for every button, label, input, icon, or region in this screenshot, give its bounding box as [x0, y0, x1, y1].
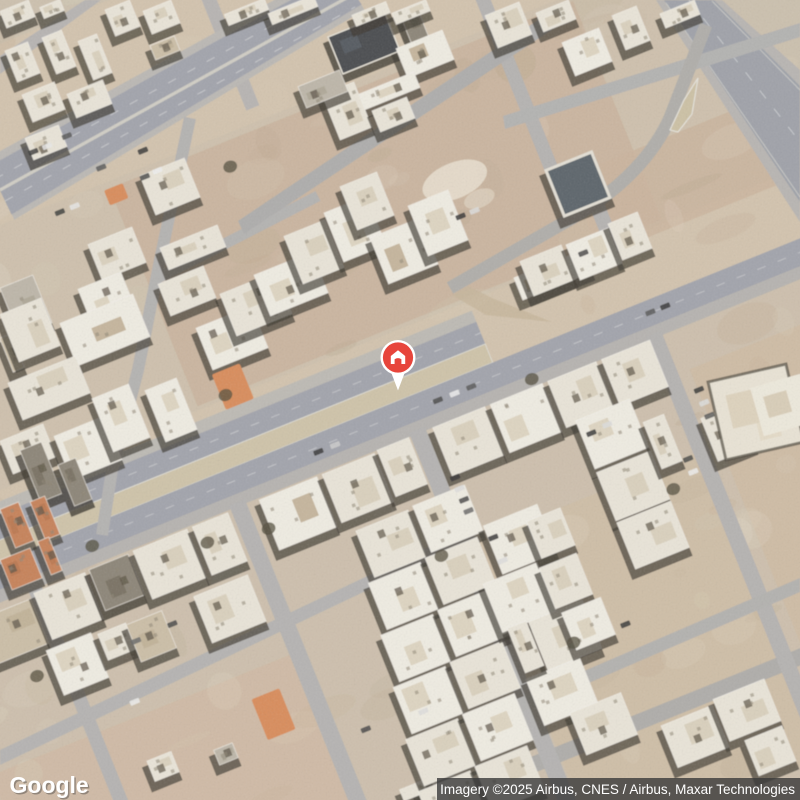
svg-text:Imagery ©2025 Airbus, CNES / A: Imagery ©2025 Airbus, CNES / Airbus, Max…	[440, 782, 795, 797]
svg-text:Google: Google	[10, 772, 89, 798]
